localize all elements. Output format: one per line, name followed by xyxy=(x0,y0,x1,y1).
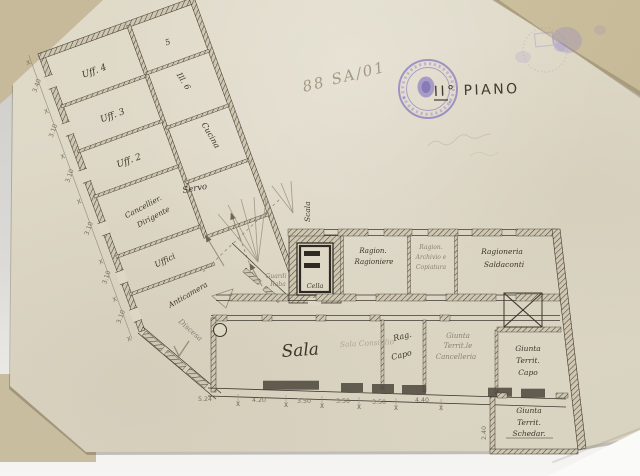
room-label-ragioneria-1: Ragioneria xyxy=(480,247,523,256)
wardrobe-label-2: Roba xyxy=(269,281,286,288)
room-label-uff2: Uff. 2 xyxy=(115,152,143,170)
svg-text:X: X xyxy=(236,401,241,408)
dim-3-50-b: 3.50 xyxy=(336,398,350,405)
giunta1-line2: Territ.le xyxy=(444,342,473,350)
hall-label: Sala xyxy=(281,339,320,362)
round-column xyxy=(214,324,227,337)
dim-4-20: 4.20 xyxy=(252,397,266,404)
giunta3-line2: Territ. xyxy=(517,418,541,427)
stairs-label: Scala xyxy=(303,201,312,222)
wardrobe-label-1: Guardi xyxy=(266,273,287,280)
room-label-archivio-2: Archivio e xyxy=(415,254,447,261)
cell-bed xyxy=(304,251,320,256)
giunta1-line3: Cancelleria xyxy=(436,353,476,361)
giunta2-line1: Giunta xyxy=(515,344,541,353)
svg-text:3.10: 3.10 xyxy=(101,270,112,286)
descent-label: Discesa xyxy=(176,316,204,343)
room-label-uff3: Uff. 3 xyxy=(99,107,127,125)
svg-text:X: X xyxy=(439,405,444,412)
dim-3-50-c: 3.50 xyxy=(372,399,386,406)
cell-bed xyxy=(304,263,320,268)
chief-label-2: Capo xyxy=(390,348,413,362)
giunta3-line3: Schedar. xyxy=(512,429,545,438)
floor-plan-drawing: Uff. 4 Uff. 3 Uff. 2 Cancellier. Dirigen… xyxy=(0,0,640,476)
faded-corner-stamp xyxy=(515,24,606,72)
cell-label: Cella xyxy=(307,282,324,290)
pencil-inventory-number: 88 SA/01 xyxy=(301,58,388,96)
svg-text:X: X xyxy=(320,403,325,410)
dim-3-50-a: 3.50 xyxy=(297,398,311,405)
left-wing: Uff. 4 Uff. 3 Uff. 2 Cancellier. Dirigen… xyxy=(20,0,298,345)
room-label-archivio-1: Ragion. xyxy=(418,244,442,251)
room-label-cucina: Cucina xyxy=(200,121,222,150)
svg-text:3.40: 3.40 xyxy=(31,78,42,94)
room-label-5: 5 xyxy=(164,37,172,47)
svg-text:X: X xyxy=(357,404,362,411)
svg-text:3.10: 3.10 xyxy=(83,221,94,237)
giunta3-line1: Giunta xyxy=(516,406,542,415)
svg-text:3.10: 3.10 xyxy=(64,168,75,184)
room-label-ragioneria-2: Saldaconti xyxy=(484,260,525,269)
hall-pencil-note: Sala Consiglio xyxy=(340,337,395,349)
giunta1-line1: Giunta xyxy=(446,332,470,340)
room-label-ragioniere-2: Ragioniere xyxy=(354,258,394,266)
room-label-uff4: Uff. 4 xyxy=(81,63,109,81)
room-label-ill6: Ill. 6 xyxy=(174,70,192,91)
giunta2-line3: Capo xyxy=(518,368,538,377)
room-label-anticamera: Anticamera xyxy=(166,280,209,310)
photographed-floor-plan: Uff. 4 Uff. 3 Uff. 2 Cancellier. Dirigen… xyxy=(0,0,640,476)
faint-pencil-script xyxy=(428,134,498,156)
room-label-archivio-3: Copiatura xyxy=(416,264,447,271)
room-label-ragioniere-1: Ragion. xyxy=(358,247,386,255)
svg-text:3.10: 3.10 xyxy=(116,309,127,325)
svg-text:X: X xyxy=(394,405,399,412)
svg-text:X: X xyxy=(284,402,289,409)
check-mark xyxy=(174,341,189,356)
chief-label-1: Rag. xyxy=(391,330,412,343)
bottom-dimensions: 5.24 X 4.20 X 3.50 X 3.50 X 3.50 X 4.40 … xyxy=(198,394,488,440)
dim-5-24: 5.24 xyxy=(198,396,212,403)
floor-title: II° PIANO xyxy=(434,81,520,100)
svg-text:X: X xyxy=(126,335,133,343)
dim-4-40: 4.40 xyxy=(415,397,429,404)
svg-text:3.10: 3.10 xyxy=(48,123,59,139)
hall-row: Sala Sala Consiglio Rag. Capo Giunta Ter… xyxy=(208,229,586,454)
right-facade-wall xyxy=(552,229,586,450)
cell-block: Scala Cella Guardi Roba xyxy=(266,201,341,305)
left-wing-dimensions: X X X X X X X 3.40 3.10 3.10 3.10 3.10 3… xyxy=(20,54,138,346)
dim-annex-2-40: 2.40 xyxy=(481,426,488,440)
room-label-uffici: Uffici xyxy=(153,251,177,269)
giunta2-line2: Territ. xyxy=(516,356,540,365)
